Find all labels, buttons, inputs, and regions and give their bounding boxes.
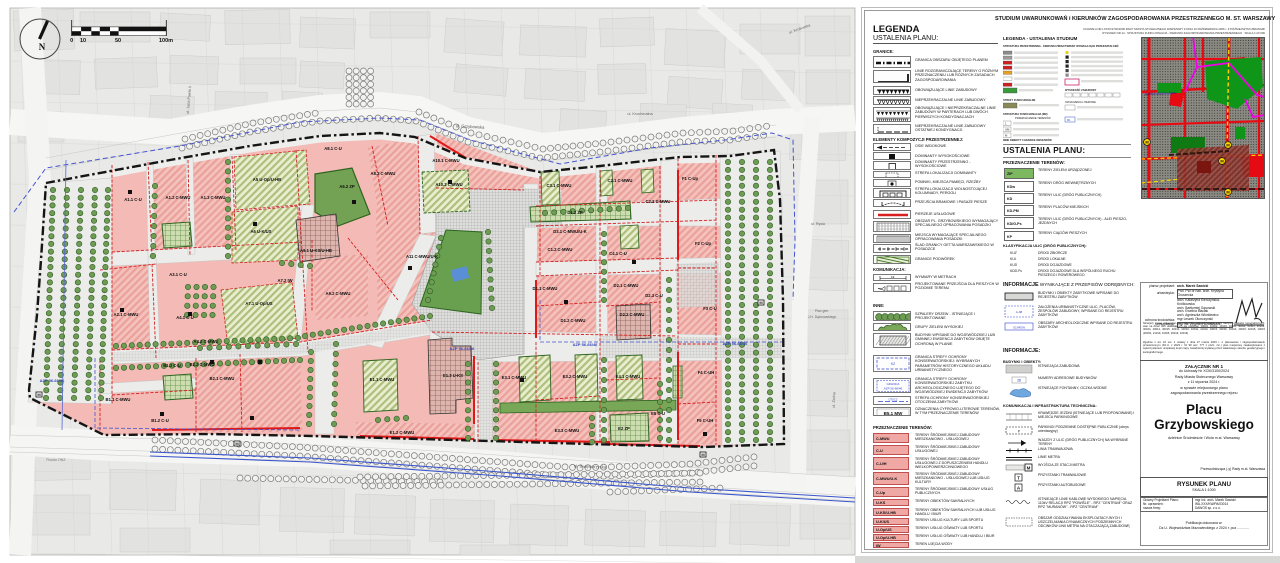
svg-text:GRANICA: GRANICA [887, 382, 900, 386]
svg-text:A10.1 C-MWU: A10.1 C-MWU [432, 158, 459, 163]
svg-text:E5 C-U: E5 C-U [651, 411, 665, 416]
svg-text:M1: M1 [1067, 118, 1071, 122]
svg-text:C2.2 C-MWU: C2.2 C-MWU [646, 199, 671, 204]
svg-text:INNE OBIEKTY I GRANICE OBSZARÓ: INNE OBIEKTY I GRANICE OBSZARÓW [1003, 137, 1052, 142]
svg-text:WYSOKOŚĆ ZABUDOWY: WYSOKOŚĆ ZABUDOWY [1065, 87, 1097, 92]
svg-text:STREFY FUNKCJONALNE: STREFY FUNKCJONALNE [1003, 98, 1036, 102]
svg-text:N: N [39, 42, 46, 52]
svg-text:A7.2 IW: A7.2 IW [277, 278, 292, 283]
svg-text:E4.1 C-MWU: E4.1 C-MWU [616, 374, 641, 379]
svg-text:A8.1 C-U: A8.1 C-U [324, 146, 341, 151]
svg-text:M: M [1027, 466, 1031, 471]
svg-text:A1.2 C-MWU: A1.2 C-MWU [166, 195, 191, 200]
svg-text:A11 C-MWU/U-K: A11 C-MWU/U-K [406, 254, 438, 259]
svg-text:TERENY WYMAGAJĄCE PRZEKSZTAŁCE: TERENY WYMAGAJĄCE PRZEKSZTAŁCEŃ [1065, 43, 1118, 48]
svg-text:0: 0 [70, 38, 73, 44]
svg-text:A10.2 C-MWU: A10.2 C-MWU [435, 182, 462, 187]
svg-text:ul. Krochmalna: ul. Krochmalna [627, 112, 653, 116]
svg-text:STRUKTURA FUNKCJONALNA (M2):: STRUKTURA FUNKCJONALNA (M2): [1003, 112, 1048, 116]
svg-text:E1.2 C-MWU: E1.2 C-MWU [390, 430, 415, 435]
svg-text:F5 C-UH: F5 C-UH [697, 418, 714, 423]
svg-text:C3.1 C-MWU: C3.1 C-MWU [547, 183, 572, 188]
svg-text:D1.2 ZP: D1.2 ZP [567, 210, 583, 215]
svg-text:D2.1 C-MWU: D2.1 C-MWU [614, 283, 639, 288]
svg-text:B5.1 MW: B5.1 MW [884, 411, 904, 416]
svg-text:F3 C-U: F3 C-U [703, 306, 717, 311]
svg-text:19: 19 [891, 275, 895, 279]
svg-text:A4.2 C-MWU: A4.2 C-MWU [194, 339, 219, 344]
svg-text:D2.2 C-MWU: D2.2 C-MWU [620, 312, 645, 317]
svg-text:C4.1 C-U: C4.1 C-U [609, 251, 626, 256]
svg-text:AZP 56-66/46: AZP 56-66/46 [723, 341, 749, 346]
svg-text:F4 C-UH: F4 C-UH [698, 370, 715, 375]
svg-text:D1.1 C-MWU: D1.1 C-MWU [533, 286, 558, 291]
svg-text:B1.2 C-U: B1.2 C-U [151, 418, 168, 423]
svg-text:C2.1 C-MWU: C2.1 C-MWU [608, 178, 633, 183]
svg-text:B2.2 C-MWU: B2.2 C-MWU [190, 362, 215, 367]
svg-text:E1.3 U-KS: E1.3 U-KS [443, 373, 463, 378]
svg-text:T: T [1017, 476, 1020, 481]
svg-text:A9.1 U-KS/U-HB: A9.1 U-KS/U-HB [300, 248, 332, 253]
svg-text:A8.3 C-MWU: A8.3 C-MWU [371, 171, 396, 176]
svg-text:A1.3 C-MWU: A1.3 C-MWU [201, 195, 226, 200]
svg-text:A7.1 U-Op/US: A7.1 U-Op/US [245, 301, 272, 306]
svg-text:50: 50 [115, 38, 121, 44]
svg-text:Plac gen.: Plac gen. [815, 309, 829, 313]
svg-text:100m: 100m [159, 38, 173, 44]
svg-text:E2 ZP: E2 ZP [618, 426, 630, 431]
svg-text:C1.2 C-MWU: C1.2 C-MWU [548, 247, 573, 252]
svg-text:AZP 56-66/46: AZP 56-66/46 [40, 378, 66, 383]
svg-text:E3.1 C-MWU: E3.1 C-MWU [502, 375, 527, 380]
svg-text:A9.2 C-MWU: A9.2 C-MWU [326, 291, 351, 296]
svg-text:AZP 56-66/46: AZP 56-66/46 [884, 387, 903, 391]
svg-text:ul. Rysia: ul. Rysia [811, 222, 825, 226]
svg-text:28: 28 [1017, 379, 1021, 383]
svg-text:A4.1 C-U: A4.1 C-U [176, 315, 193, 320]
svg-text:STRUKTURA PRZESTRZENNA - KIERU: STRUKTURA PRZESTRZENNA - KIERUNKI ZMIAN [1003, 44, 1065, 48]
svg-text:F1 C-Up: F1 C-Up [682, 176, 698, 181]
svg-text:A1.1 C-U: A1.1 C-U [124, 197, 141, 202]
svg-text:F2 C-Up: F2 C-Up [695, 241, 711, 246]
svg-text:A2.1 C-MWU: A2.1 C-MWU [114, 312, 139, 317]
svg-text:A-98: A-98 [1016, 310, 1023, 314]
svg-text:KZ: KZ [891, 362, 895, 366]
svg-text:Rondo ONZ: Rondo ONZ [46, 458, 66, 462]
svg-text:D3.1 C-MWU/U-K: D3.1 C-MWU/U-K [553, 229, 587, 234]
svg-text:AZP 56-66/46: AZP 56-66/46 [450, 346, 476, 351]
svg-text:A6.2 ZP: A6.2 ZP [339, 184, 355, 189]
svg-text:B2.1 C-MWU: B2.1 C-MWU [210, 376, 235, 381]
svg-text:A6 U-K/US: A6 U-K/US [251, 229, 272, 234]
svg-text:AZP 56-66/46: AZP 56-66/46 [573, 342, 599, 347]
svg-text:OTOCZ: OTOCZ [888, 397, 897, 401]
svg-text:OZNACZENIA LITEROWE: OZNACZENIA LITEROWE [1065, 100, 1096, 104]
svg-text:P: P [1018, 430, 1020, 434]
svg-text:A5 U-Op/U-HB: A5 U-Op/U-HB [253, 177, 281, 182]
svg-text:ul. Zielna: ul. Zielna [832, 391, 837, 407]
svg-text:A3.1 C-U: A3.1 C-U [169, 272, 186, 277]
svg-text:E3.3 C-MWU: E3.3 C-MWU [555, 428, 580, 433]
svg-text:J.H. Dąbrowskiego: J.H. Dąbrowskiego [808, 315, 837, 319]
svg-text:B1.3 C-U: B1.3 C-U [163, 363, 180, 368]
svg-text:E1.1 C-MWU: E1.1 C-MWU [370, 377, 395, 382]
svg-text:10: 10 [80, 38, 86, 44]
svg-text:D2.3 C-U: D2.3 C-U [645, 293, 662, 298]
svg-text:UM: UM [1005, 128, 1010, 132]
svg-text:E3.2 C-MWU: E3.2 C-MWU [563, 374, 588, 379]
svg-text:SCHRON: SCHRON [1013, 326, 1025, 330]
svg-text:D1.2 C-MWU: D1.2 C-MWU [561, 318, 586, 323]
svg-text:B1.1 C-MWU: B1.1 C-MWU [106, 397, 131, 402]
